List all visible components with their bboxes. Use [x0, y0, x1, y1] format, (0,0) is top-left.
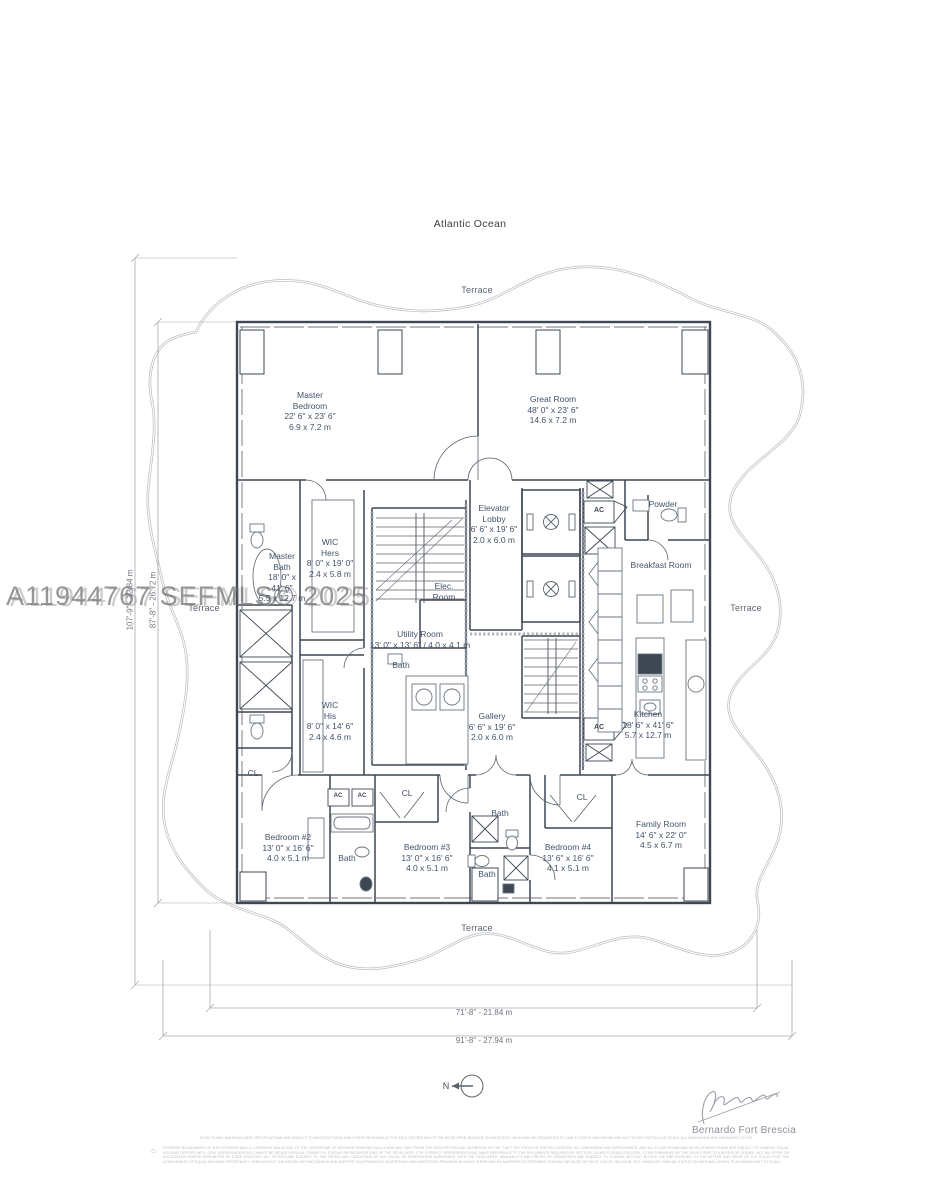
room-label-bedroom-3: Bedroom #3 13' 0" x 16' 6" 4.0 x 5.1 m	[401, 842, 452, 874]
room-label-elec-room: Elec. Room	[433, 581, 456, 602]
room-label-bedroom-2: Bedroom #2 13' 0" x 16' 6" 4.0 x 5.1 m	[262, 832, 313, 864]
terrace-label-top: Terrace	[461, 285, 492, 295]
disclaimer-note: NOTE: PLANS, MATERIALS AND SPECIFICATION…	[160, 1136, 792, 1140]
room-label-wic-his: WIC His 8' 0" x 14' 6" 2.4 x 4.6 m	[307, 700, 354, 742]
terrace-label-right: Terrace	[730, 603, 761, 613]
signature-stroke	[698, 1092, 780, 1124]
dim-outer-width: 91'-8" - 27.94 m	[456, 1036, 512, 1045]
north-arrow-icon	[452, 1075, 483, 1097]
atlantic-ocean-label: Atlantic Ocean	[434, 218, 507, 230]
room-label-powder: Powder	[649, 499, 678, 510]
equal-housing-icon: ⌂	[151, 1147, 156, 1155]
room-label-master-bath: Master Bath 18' 0" x 41' 6" 5.5 x 12.7 m	[259, 551, 306, 604]
room-label-master-bedroom: Master Bedroom 22' 6" x 23' 6" 6.9 x 7.2…	[284, 390, 335, 432]
dim-outer-height: 107'-9" - 32.84 m	[126, 570, 135, 631]
room-label-elevator-lobby: Elevator Lobby 6' 6" x 19' 6" 2.0 x 6.0 …	[471, 503, 518, 545]
dim-inner-height: 87'-8" - 26.72 m	[149, 572, 158, 628]
floorplan-page: Atlantic Ocean Terrace Terrace Terrace T…	[0, 0, 927, 1200]
room-label-bath-3b: Bath	[478, 869, 496, 880]
ac-label-top-right: AC	[594, 507, 604, 514]
room-label-kitchen: Kitchen 18' 6" x 41' 6" 5.7 x 12.7 m	[622, 709, 673, 741]
disclaimer-body: EXTERIOR BOUNDARIES OF THE EXTERIOR WALL…	[163, 1146, 789, 1164]
room-label-utility-room: Utility Room 13' 0" x 13' 6" / 4.0 x 4.1…	[370, 629, 470, 650]
mls-watermark: A11944767 SEFMLS© 2025	[6, 581, 367, 612]
room-label-bath-3a: Bath	[491, 808, 509, 819]
closet-label-bed3: CL	[402, 788, 413, 799]
ac-label-bath2-b: AC	[358, 793, 367, 799]
room-label-breakfast-room: Breakfast Room	[631, 560, 692, 571]
room-label-utility-bath: Bath	[392, 660, 410, 671]
ac-label-bath2-a: AC	[334, 793, 343, 799]
room-label-wic-hers: WIC Hers 8' 0" x 19' 0" 2.4 x 5.8 m	[307, 537, 354, 579]
closet-label-left: CL	[248, 768, 259, 779]
room-label-great-room: Great Room 48' 0" x 23' 6" 14.6 x 7.2 m	[527, 394, 578, 426]
dim-inner-width: 71'-8" - 21.84 m	[456, 1008, 512, 1017]
room-label-family-room: Family Room 14' 6" x 22' 0" 4.5 x 6.7 m	[635, 819, 686, 851]
room-label-bedroom-4: Bedroom #4 13' 6" x 16' 6" 4.1 x 5.1 m	[542, 842, 593, 874]
closet-label-bed4: CL	[577, 792, 588, 803]
terrace-label-bottom: Terrace	[461, 923, 492, 933]
north-label: N	[443, 1081, 450, 1091]
room-label-bath-2: Bath	[338, 853, 356, 864]
room-label-gallery: Gallery 6' 6" x 19' 6" 2.0 x 6.0 m	[469, 711, 516, 743]
architect-signature-name: Bernardo Fort Brescia	[692, 1125, 796, 1136]
ac-label-bottom-right: AC	[594, 724, 604, 731]
